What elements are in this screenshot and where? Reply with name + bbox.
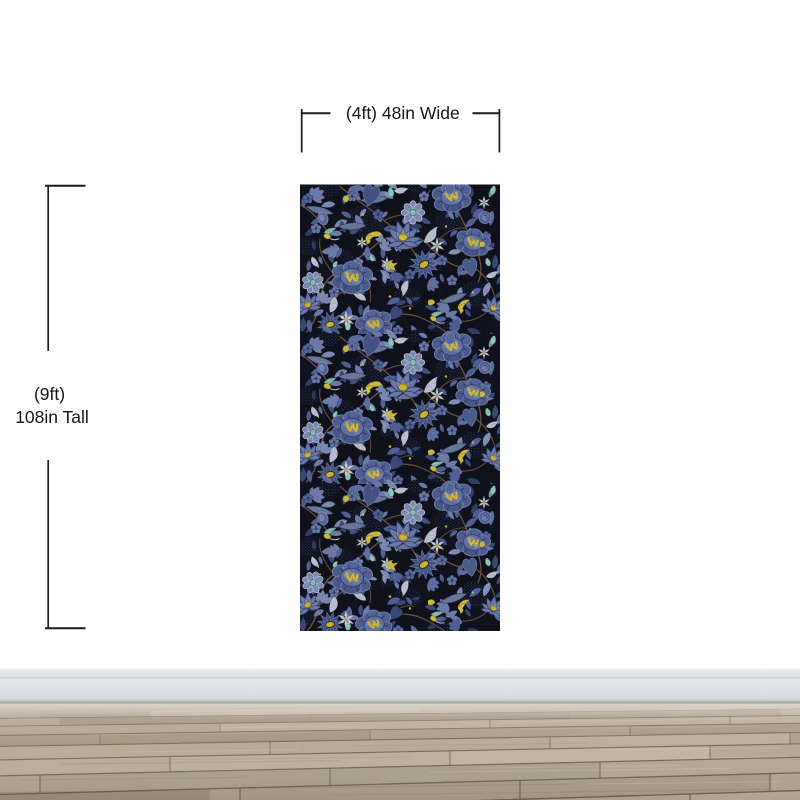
svg-text:108in Tall: 108in Tall xyxy=(15,407,89,427)
svg-text:(4ft) 48in Wide: (4ft) 48in Wide xyxy=(346,103,460,123)
svg-text:(9ft): (9ft) xyxy=(34,384,65,404)
